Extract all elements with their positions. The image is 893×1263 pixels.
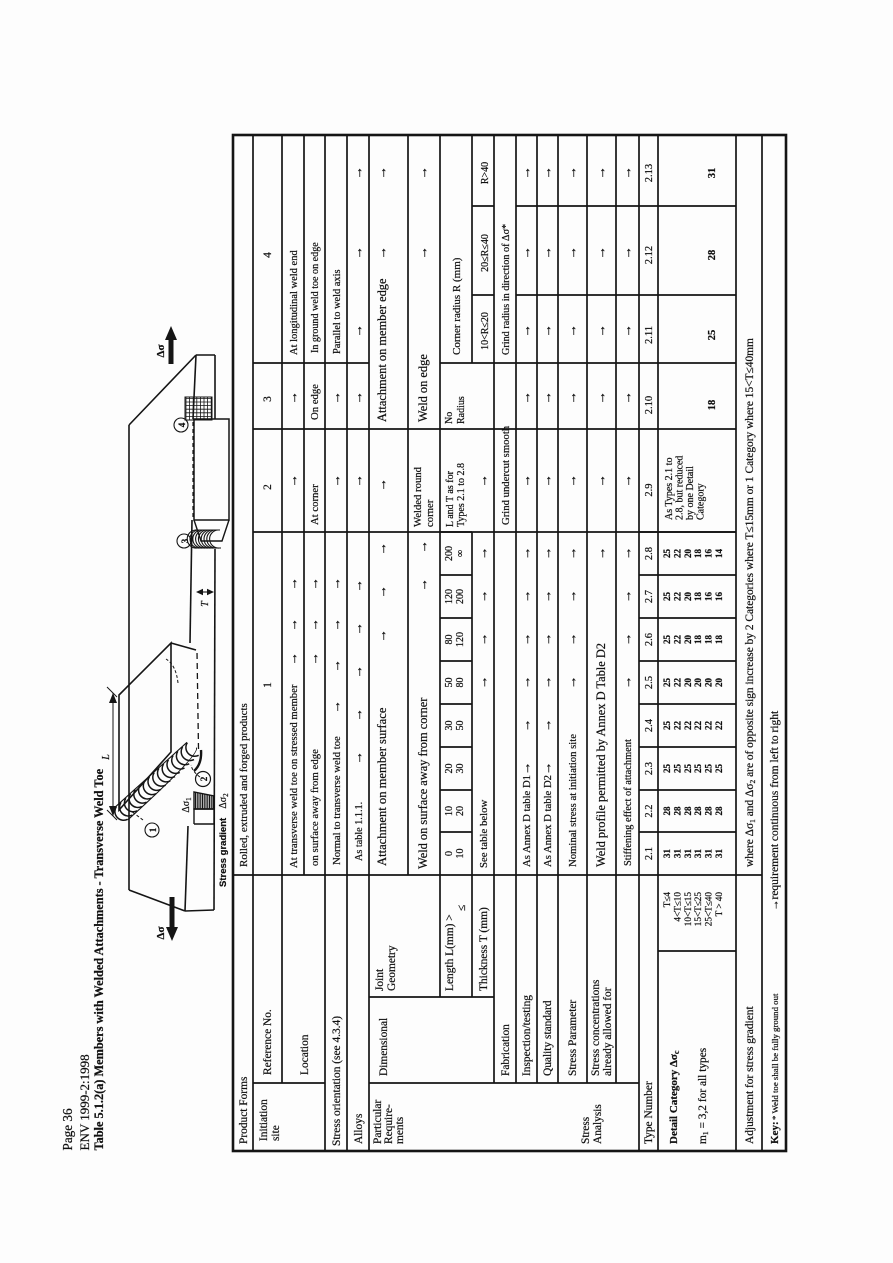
svg-text:25: 25 xyxy=(662,721,672,731)
svg-text:→: → xyxy=(415,166,430,180)
svg-text:→: → xyxy=(518,676,533,690)
svg-text:20: 20 xyxy=(704,678,714,688)
svg-text:As Annex D table D1: As Annex D table D1 xyxy=(521,775,533,867)
svg-text:≤: ≤ xyxy=(456,905,468,911)
svg-text:→: → xyxy=(475,547,490,561)
svg-text:→: → xyxy=(518,547,533,561)
svg-text:30: 30 xyxy=(444,721,455,731)
svg-text:Δσ: Δσ xyxy=(155,345,167,358)
svg-text:→: → xyxy=(475,633,490,647)
svg-text:4<T≤10: 4<T≤10 xyxy=(672,892,682,922)
svg-text:31: 31 xyxy=(683,849,693,859)
svg-text:See table below: See table below xyxy=(478,799,490,868)
svg-text:Weld on surface away from corn: Weld on surface away from corner xyxy=(416,697,430,869)
svg-text:31: 31 xyxy=(704,849,714,859)
svg-text:As Annex D table D2: As Annex D table D2 xyxy=(542,775,554,867)
svg-text:2.4: 2.4 xyxy=(644,718,655,732)
svg-text:→: → xyxy=(593,474,608,488)
svg-text:→: → xyxy=(415,246,430,260)
svg-text:18: 18 xyxy=(693,549,703,559)
svg-text:→: → xyxy=(374,166,389,180)
svg-text:→: → xyxy=(564,474,579,488)
svg-text:At longitudinal weld end: At longitudinal weld end xyxy=(289,250,300,355)
svg-text:→: → xyxy=(374,542,389,556)
svg-text:→: → xyxy=(564,676,579,690)
svg-text:22: 22 xyxy=(693,721,703,731)
svg-text:Stiffening effect of attachmen: Stiffening effect of attachment xyxy=(623,739,634,866)
svg-text:ENV 1999-2:1998: ENV 1999-2:1998 xyxy=(77,1054,92,1150)
svg-text:25: 25 xyxy=(714,764,724,774)
svg-text:16: 16 xyxy=(704,592,714,602)
svg-text:→: → xyxy=(328,474,343,488)
svg-text:→: → xyxy=(328,659,343,673)
svg-text:18: 18 xyxy=(704,635,714,645)
svg-text:31: 31 xyxy=(707,168,718,179)
svg-text:→: → xyxy=(539,166,554,180)
svg-text:2.13: 2.13 xyxy=(644,164,655,182)
svg-text:Weld profile permitted by Anne: Weld profile permitted by Annex D Table … xyxy=(594,643,608,867)
svg-text:L and T as for: L and T as for xyxy=(445,470,456,527)
svg-text:28: 28 xyxy=(707,250,718,261)
svg-text:Thickness T (mm): Thickness T (mm) xyxy=(478,907,490,991)
svg-text:22: 22 xyxy=(672,678,682,688)
svg-text:Weld on edge: Weld on edge xyxy=(416,354,430,422)
svg-text:2.6: 2.6 xyxy=(644,633,655,646)
svg-text:→: → xyxy=(306,618,321,632)
svg-text:T≤4: T≤4 xyxy=(662,892,672,908)
svg-text:Normal to transverse weld toe: Normal to transverse weld toe xyxy=(331,736,343,865)
svg-text:25: 25 xyxy=(662,549,672,559)
svg-text:→: → xyxy=(374,478,389,492)
svg-text:31: 31 xyxy=(714,849,724,859)
svg-text:→: → xyxy=(619,590,634,604)
svg-text:Radius: Radius xyxy=(456,396,467,424)
svg-text:50: 50 xyxy=(444,678,455,688)
svg-text:→: → xyxy=(539,676,554,690)
svg-text:→: → xyxy=(350,246,365,260)
svg-text:2.2: 2.2 xyxy=(644,804,655,817)
svg-text:3: 3 xyxy=(180,538,190,543)
svg-text:→: → xyxy=(285,652,300,666)
svg-text:→: → xyxy=(518,590,533,604)
svg-text:→: → xyxy=(350,579,365,593)
svg-text:Δσ2: Δσ2 xyxy=(218,793,230,809)
svg-text:→: → xyxy=(518,324,533,338)
svg-text:120: 120 xyxy=(455,632,466,647)
svg-text:80: 80 xyxy=(444,635,455,645)
svg-text:At corner: At corner xyxy=(309,484,321,525)
svg-text:Quality standard: Quality standard xyxy=(542,1000,554,1076)
svg-text:T > 40: T > 40 xyxy=(714,892,724,917)
svg-text:→: → xyxy=(593,166,608,180)
svg-text:→: → xyxy=(564,547,579,561)
svg-text:→: → xyxy=(328,618,343,632)
svg-text:25: 25 xyxy=(707,330,718,341)
svg-text:→: → xyxy=(350,324,365,338)
svg-text:→: → xyxy=(350,391,365,405)
svg-text:2.3: 2.3 xyxy=(644,762,655,775)
svg-text:Nominal stress at initiation s: Nominal stress at initiation site xyxy=(567,734,579,867)
svg-text:→: → xyxy=(350,708,365,722)
svg-text:80: 80 xyxy=(455,678,466,688)
svg-text:20: 20 xyxy=(444,764,455,774)
svg-text:200: 200 xyxy=(455,589,466,604)
svg-text:On edge: On edge xyxy=(309,384,321,420)
svg-text:22: 22 xyxy=(683,721,693,731)
svg-text:1: 1 xyxy=(262,682,274,688)
svg-text:28: 28 xyxy=(672,806,682,816)
svg-text:In ground weld toe on edge: In ground weld toe on edge xyxy=(310,242,321,353)
svg-text:Stress Parameter: Stress Parameter xyxy=(567,1000,579,1076)
svg-text:2.9: 2.9 xyxy=(644,483,655,496)
svg-text:Key:: Key: xyxy=(769,1121,781,1144)
svg-text:→: → xyxy=(564,246,579,260)
svg-text:22: 22 xyxy=(714,721,724,731)
svg-text:Corner radius R (mm): Corner radius R (mm) xyxy=(451,257,463,355)
svg-text:→: → xyxy=(306,577,321,591)
svg-text:Grind undercut smooth: Grind undercut smooth xyxy=(500,425,512,525)
svg-text:18: 18 xyxy=(707,400,718,411)
svg-text:→: → xyxy=(350,665,365,679)
svg-text:→: → xyxy=(593,246,608,260)
svg-text:→: → xyxy=(564,166,579,180)
svg-text:Δσ: Δσ xyxy=(155,927,167,940)
svg-text:Parallel to weld axis: Parallel to weld axis xyxy=(332,269,343,354)
svg-text:25: 25 xyxy=(683,764,693,774)
svg-text:R>40: R>40 xyxy=(480,162,491,184)
svg-text:16: 16 xyxy=(714,592,724,602)
svg-text:20≤R≤40: 20≤R≤40 xyxy=(480,234,491,272)
svg-text:28: 28 xyxy=(704,806,714,816)
svg-text:Stress gradient: Stress gradient xyxy=(218,817,229,887)
svg-text:m1 = 3,2 for all types: m1 = 3,2 for all types xyxy=(697,1047,710,1144)
svg-text:Initiation: Initiation xyxy=(258,1099,270,1141)
svg-text:→: → xyxy=(619,391,634,405)
svg-text:Attachment on member edge: Attachment on member edge xyxy=(375,278,389,422)
svg-text:Alloys: Alloys xyxy=(353,1113,365,1144)
svg-text:As Types 2.1 to: As Types 2.1 to xyxy=(664,458,675,520)
svg-text:25<T≤40: 25<T≤40 xyxy=(704,892,714,927)
svg-text:120: 120 xyxy=(444,589,455,604)
svg-text:Category: Category xyxy=(696,483,707,520)
svg-text:4: 4 xyxy=(177,422,187,427)
svg-text:2.12: 2.12 xyxy=(644,246,655,264)
svg-text:→: → xyxy=(328,700,343,714)
svg-text:2: 2 xyxy=(262,484,274,490)
svg-text:28: 28 xyxy=(683,806,693,816)
svg-text:20: 20 xyxy=(714,678,724,688)
svg-text:18: 18 xyxy=(693,592,703,602)
svg-text:→: → xyxy=(518,474,533,488)
svg-text:10<T≤15: 10<T≤15 xyxy=(683,892,693,927)
svg-text:28: 28 xyxy=(693,806,703,816)
svg-text:200: 200 xyxy=(444,546,455,561)
svg-text:14: 14 xyxy=(714,549,724,559)
svg-text:Reference No.: Reference No. xyxy=(262,1009,274,1075)
svg-text:25: 25 xyxy=(662,678,672,688)
svg-text:ments: ments xyxy=(394,1116,406,1144)
svg-text:Stress concentrations: Stress concentrations xyxy=(590,979,602,1076)
svg-text:Adjustment for stress gradient: Adjustment for stress gradient xyxy=(744,1006,756,1144)
svg-text:31: 31 xyxy=(693,849,703,859)
svg-text:25: 25 xyxy=(672,764,682,774)
svg-text:→requirement continuous from l: →requirement continuous from left to rig… xyxy=(769,710,781,911)
svg-text:2.5: 2.5 xyxy=(644,676,655,689)
svg-text:10: 10 xyxy=(444,806,455,816)
svg-text:→: → xyxy=(306,652,321,666)
svg-text:25: 25 xyxy=(662,592,672,602)
svg-text:→: → xyxy=(593,324,608,338)
svg-text:16: 16 xyxy=(704,549,714,559)
svg-text:2.1: 2.1 xyxy=(644,847,655,860)
svg-text:→: → xyxy=(539,547,554,561)
svg-text:22: 22 xyxy=(672,721,682,731)
svg-text:→: → xyxy=(518,719,533,733)
svg-text:Δσ1: Δσ1 xyxy=(181,797,193,813)
svg-text:→: → xyxy=(539,391,554,405)
svg-text:on surface away from edge: on surface away from edge xyxy=(309,749,321,866)
svg-text:→: → xyxy=(415,578,430,592)
svg-text:→: → xyxy=(328,391,343,405)
svg-text:→: → xyxy=(285,474,300,488)
svg-text:→: → xyxy=(539,246,554,260)
svg-text:→: → xyxy=(328,577,343,591)
svg-text:20: 20 xyxy=(693,678,703,688)
svg-text:Attachment on member surface: Attachment on member surface xyxy=(375,707,389,866)
svg-text:2.10: 2.10 xyxy=(644,396,655,414)
svg-text:4: 4 xyxy=(262,252,274,258)
svg-text:22: 22 xyxy=(704,721,714,731)
svg-text:* Weld toe shall be fully grou: * Weld toe shall be fully ground out xyxy=(770,993,780,1120)
svg-text:Analysis: Analysis xyxy=(592,1104,604,1144)
svg-text:→: → xyxy=(518,166,533,180)
svg-text:→: → xyxy=(564,633,579,647)
svg-text:→: → xyxy=(285,618,300,632)
svg-text:25: 25 xyxy=(693,764,703,774)
svg-text:→: → xyxy=(374,585,389,599)
svg-text:→: → xyxy=(619,246,634,260)
svg-text:site: site xyxy=(270,1125,282,1141)
svg-text:→: → xyxy=(475,676,490,690)
svg-text:20: 20 xyxy=(683,592,693,602)
svg-text:At transverse weld toe on stre: At transverse weld toe on stressed membe… xyxy=(288,684,300,868)
svg-text:→: → xyxy=(285,577,300,591)
svg-text:→: → xyxy=(350,622,365,636)
svg-text:2.8: 2.8 xyxy=(644,547,655,560)
svg-text:3: 3 xyxy=(262,396,274,402)
svg-text:Joint: Joint xyxy=(374,968,386,991)
svg-text:2.8, but reduced: 2.8, but reduced xyxy=(675,456,686,520)
svg-text:Grind radius in direction of Δ: Grind radius in direction of Δσ* xyxy=(501,224,512,355)
svg-text:22: 22 xyxy=(672,592,682,602)
svg-text:→: → xyxy=(415,540,430,554)
svg-text:→: → xyxy=(593,391,608,405)
svg-text:→: → xyxy=(374,246,389,260)
svg-text:As table 1.1.1.: As table 1.1.1. xyxy=(354,802,365,861)
svg-text:2: 2 xyxy=(199,776,209,781)
svg-text:→: → xyxy=(518,391,533,405)
svg-text:20: 20 xyxy=(683,678,693,688)
svg-text:L: L xyxy=(101,754,112,761)
svg-text:→: → xyxy=(475,590,490,604)
svg-text:2.7: 2.7 xyxy=(644,590,655,603)
svg-text:→: → xyxy=(619,633,634,647)
svg-text:→: → xyxy=(518,762,533,776)
svg-text:→: → xyxy=(619,547,634,561)
svg-text:10: 10 xyxy=(455,849,466,859)
svg-text:20: 20 xyxy=(455,806,466,816)
svg-text:→: → xyxy=(619,324,634,338)
svg-text:30: 30 xyxy=(455,764,466,774)
svg-text:→: → xyxy=(475,474,490,488)
svg-text:10<R≤20: 10<R≤20 xyxy=(480,312,491,350)
svg-text:18: 18 xyxy=(714,635,724,645)
svg-text:∞: ∞ xyxy=(455,550,466,557)
svg-text:→: → xyxy=(619,474,634,488)
svg-text:→: → xyxy=(539,590,554,604)
svg-text:1: 1 xyxy=(148,827,158,832)
svg-text:T: T xyxy=(200,600,211,607)
svg-text:Table 5.1.2(a) Members with We: Table 5.1.2(a) Members with Welded Attac… xyxy=(92,768,106,1150)
svg-text:25: 25 xyxy=(704,764,714,774)
svg-text:50: 50 xyxy=(455,721,466,731)
svg-text:→: → xyxy=(539,324,554,338)
svg-text:→: → xyxy=(350,166,365,180)
svg-text:22: 22 xyxy=(672,635,682,645)
svg-text:28: 28 xyxy=(714,806,724,816)
svg-text:→: → xyxy=(350,474,365,488)
svg-text:Page 36: Page 36 xyxy=(60,1108,75,1151)
svg-text:→: → xyxy=(539,719,554,733)
svg-text:→: → xyxy=(564,324,579,338)
svg-text:→: → xyxy=(518,246,533,260)
svg-text:→: → xyxy=(539,633,554,647)
svg-text:31: 31 xyxy=(662,849,672,859)
svg-text:→: → xyxy=(374,629,389,643)
svg-text:→: → xyxy=(539,762,554,776)
svg-text:→: → xyxy=(564,590,579,604)
svg-text:Welded round: Welded round xyxy=(412,466,424,527)
svg-text:Rolled, extruded and forged pr: Rolled, extruded and forged products xyxy=(238,703,250,867)
svg-text:already allowed for: already allowed for xyxy=(602,987,614,1076)
svg-text:→: → xyxy=(593,547,608,561)
svg-text:→: → xyxy=(285,391,300,405)
svg-text:→: → xyxy=(518,633,533,647)
svg-text:15<T≤25: 15<T≤25 xyxy=(693,892,703,927)
svg-text:Inspection/testing: Inspection/testing xyxy=(521,995,533,1076)
svg-text:0: 0 xyxy=(444,851,455,856)
svg-text:Fabrication: Fabrication xyxy=(500,1024,512,1076)
svg-text:20: 20 xyxy=(683,549,693,559)
svg-text:corner: corner xyxy=(424,499,436,527)
svg-text:Type Number: Type Number xyxy=(643,1081,655,1144)
svg-text:→: → xyxy=(564,391,579,405)
svg-text:2.11: 2.11 xyxy=(644,326,655,344)
svg-text:Length L(mm) >: Length L(mm) > xyxy=(444,914,456,991)
svg-text:Detail Category Δσc: Detail Category Δσc xyxy=(668,1050,681,1144)
svg-text:Stress orientation (see 4.3.4): Stress orientation (see 4.3.4) xyxy=(331,1016,343,1146)
svg-text:where Δσ1 and Δσ2 are of oppos: where Δσ1 and Δσ2 are of opposite sign i… xyxy=(744,338,757,867)
svg-text:20: 20 xyxy=(683,635,693,645)
svg-text:25: 25 xyxy=(662,764,672,774)
svg-text:No: No xyxy=(444,412,455,424)
svg-text:25: 25 xyxy=(662,635,672,645)
svg-text:→: → xyxy=(619,166,634,180)
svg-text:→: → xyxy=(350,751,365,765)
svg-text:18: 18 xyxy=(693,635,703,645)
svg-text:28: 28 xyxy=(662,806,672,816)
svg-text:Location: Location xyxy=(299,1034,311,1075)
svg-text:→: → xyxy=(539,474,554,488)
svg-text:Product Forms: Product Forms xyxy=(238,1076,250,1144)
svg-text:22: 22 xyxy=(672,549,682,559)
svg-text:Geometry: Geometry xyxy=(386,945,398,991)
svg-text:Stress: Stress xyxy=(580,1116,592,1144)
svg-text:Types 2.1 to 2.8: Types 2.1 to 2.8 xyxy=(456,463,467,527)
svg-text:Dimensional: Dimensional xyxy=(378,1018,390,1076)
svg-text:→: → xyxy=(619,676,634,690)
svg-text:by one Detail: by one Detail xyxy=(685,466,696,520)
svg-text:31: 31 xyxy=(672,849,682,859)
